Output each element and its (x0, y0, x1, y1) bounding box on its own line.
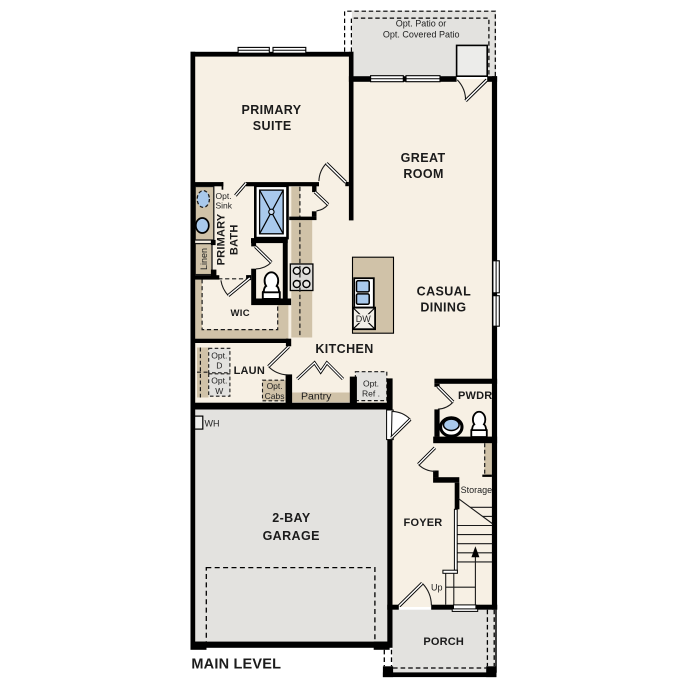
svg-text:D: D (216, 361, 222, 371)
svg-text:Cabs: Cabs (265, 391, 285, 401)
svg-text:GREAT: GREAT (401, 151, 446, 165)
svg-text:Opt. Covered Patio: Opt. Covered Patio (383, 30, 460, 40)
svg-text:PWDR: PWDR (458, 390, 492, 402)
svg-text:W: W (215, 386, 223, 396)
svg-text:BATH: BATH (229, 225, 241, 256)
svg-text:Linen: Linen (199, 248, 209, 270)
svg-text:DINING: DINING (420, 301, 466, 315)
svg-text:Opt.: Opt. (211, 351, 227, 361)
svg-text:Opt.: Opt. (267, 381, 283, 391)
svg-text:Sink: Sink (216, 201, 233, 211)
svg-text:ROOM: ROOM (403, 167, 444, 181)
svg-text:DW: DW (356, 314, 371, 324)
svg-text:WIC: WIC (231, 308, 250, 319)
svg-text:Ref .: Ref . (362, 389, 380, 399)
svg-text:WH: WH (205, 418, 220, 428)
svg-text:CASUAL: CASUAL (417, 284, 471, 298)
svg-text:GARAGE: GARAGE (263, 529, 320, 543)
svg-text:Pantry: Pantry (301, 391, 332, 403)
svg-text:KITCHEN: KITCHEN (315, 342, 373, 356)
svg-text:Up: Up (431, 583, 443, 593)
svg-text:Opt.: Opt. (211, 376, 227, 386)
svg-text:Storage: Storage (461, 485, 493, 495)
svg-text:MAIN LEVEL: MAIN LEVEL (191, 656, 281, 672)
svg-text:LAUN: LAUN (234, 365, 265, 377)
svg-text:PRIMARY: PRIMARY (216, 213, 228, 265)
svg-text:PORCH: PORCH (423, 636, 464, 648)
svg-text:SUITE: SUITE (253, 119, 292, 133)
svg-text:PRIMARY: PRIMARY (242, 103, 302, 117)
svg-text:2-BAY: 2-BAY (272, 511, 311, 525)
svg-text:Opt.: Opt. (216, 191, 232, 201)
svg-text:FOYER: FOYER (404, 517, 443, 529)
svg-text:Opt. Patio or: Opt. Patio or (396, 19, 447, 29)
svg-text:Opt.: Opt. (363, 379, 379, 389)
